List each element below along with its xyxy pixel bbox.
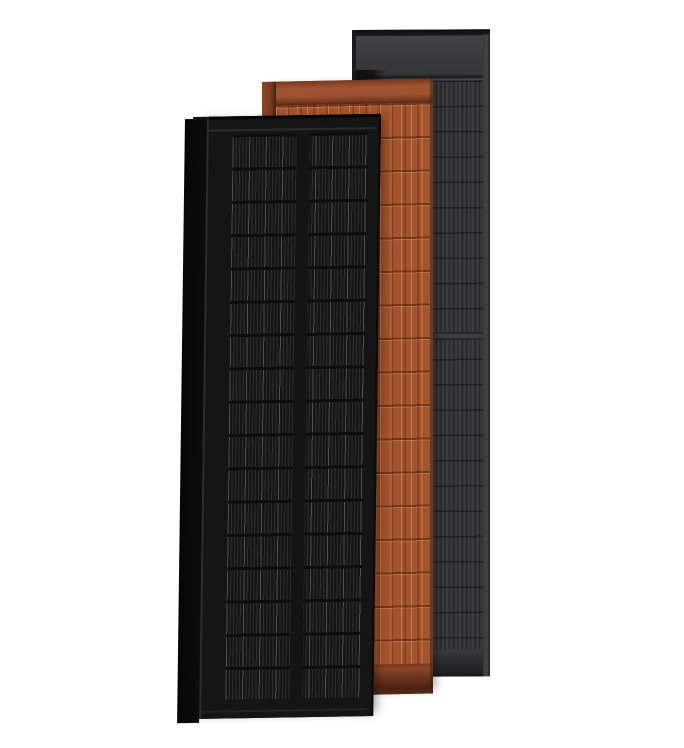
terracotta-panel-right-edge xyxy=(430,78,433,693)
anthracite-panel-top-edge xyxy=(352,29,490,36)
product-image-canvas xyxy=(0,0,684,748)
terracotta-panel-top-band xyxy=(276,78,433,105)
anthracite-panel-right-frame xyxy=(483,34,490,676)
solar-panel-black xyxy=(185,114,381,719)
